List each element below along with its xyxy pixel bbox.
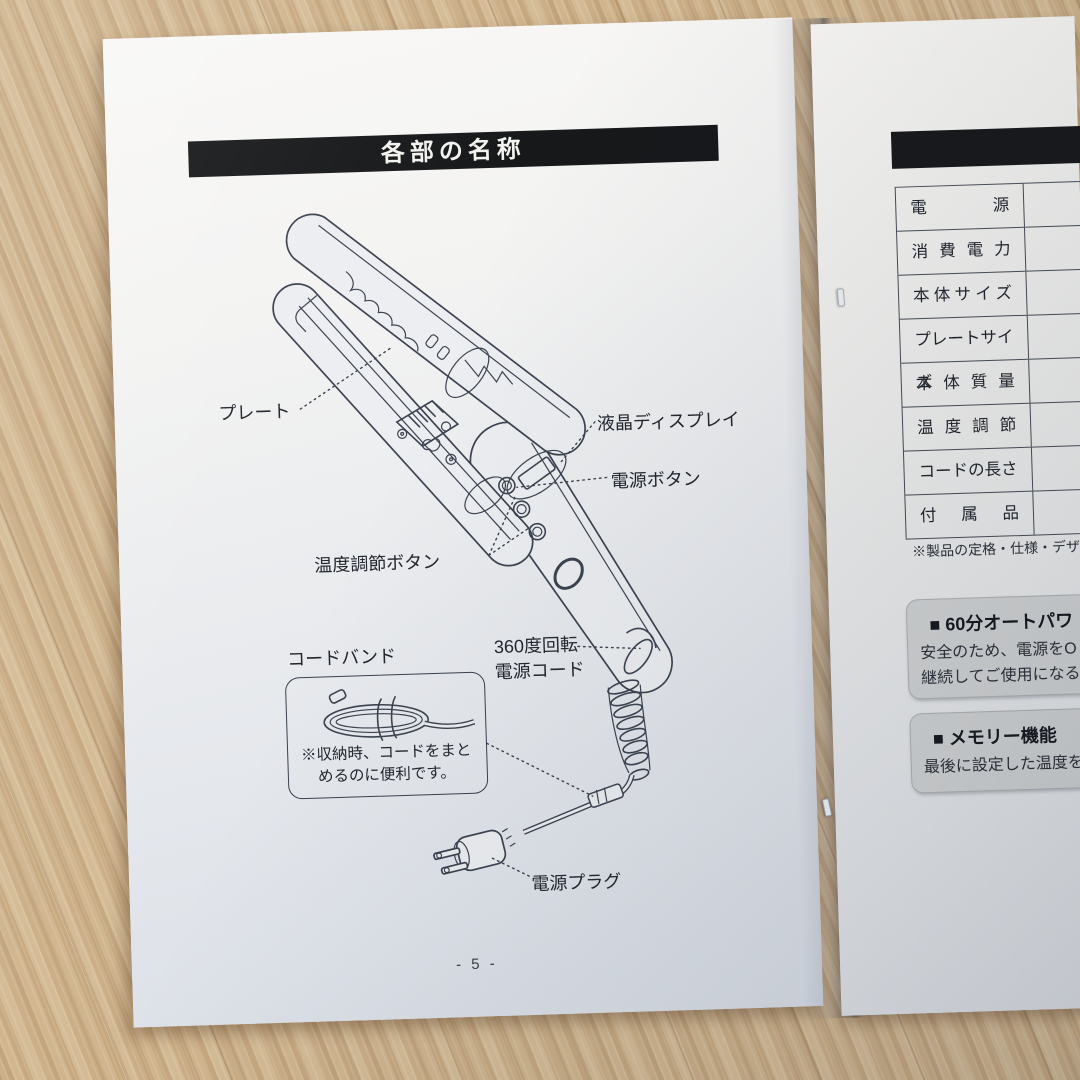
spec-value [1026, 267, 1080, 315]
manual-left-page: 各部の名称 プレート 液晶ディスプレイ 電源ボタン 温度調節ボタン コードバンド… [103, 17, 824, 1027]
spec-table: 電源 消費電力 本体サイズ プレートサイズ 本体質量 温度調節 [895, 178, 1080, 539]
table-row: 電源 [896, 179, 1080, 232]
spec-value [1024, 179, 1080, 227]
memory-function-line1: 最後に設定した温度を [923, 748, 1080, 780]
auto-power-off-box: ■ 60分オートパワ 安全のため、電源をO 継続してご使用になる [906, 592, 1080, 699]
spec-label: 消費電力 [897, 228, 1026, 275]
memory-function-heading: ■ メモリー機能 [933, 718, 1080, 751]
staple [837, 288, 846, 307]
auto-power-off-heading: ■ 60分オートパワ [929, 604, 1080, 637]
cord-band-note: ※収納時、コードをまと めるのに便利です。 [291, 740, 482, 790]
photo-of-manual: 各部の名称 プレート 液晶ディスプレイ 電源ボタン 温度調節ボタン コードバンド… [0, 0, 1080, 1080]
label-plate: プレート [218, 397, 291, 425]
spec-label: 電源 [896, 184, 1025, 231]
label-temp-button: 温度調節ボタン [314, 548, 441, 578]
spec-label: 本体サイズ [898, 272, 1027, 319]
right-page-title-bar [891, 125, 1080, 169]
spec-value [1029, 355, 1080, 403]
label-power-plug: 電源プラグ [531, 867, 622, 896]
table-row: 消費電力 [897, 223, 1080, 276]
spec-value [1031, 399, 1080, 447]
table-row: 付属品 [905, 487, 1080, 539]
spec-label: 付属品 [905, 492, 1034, 539]
staple [822, 798, 833, 817]
spec-label: 温度調節 [903, 404, 1032, 451]
label-cord-band: コードバンド [287, 642, 397, 671]
label-lcd-display: 液晶ディスプレイ [597, 405, 740, 435]
label-swivel-cord-line1: 360度回転 [494, 632, 585, 660]
label-power-button: 電源ボタン [610, 465, 701, 494]
table-row: プレートサイズ [900, 311, 1080, 364]
label-swivel-cord-line2: 電源コード [494, 657, 585, 685]
spec-value [1025, 223, 1080, 271]
manual-right-page: 電源 消費電力 本体サイズ プレートサイズ 本体質量 温度調節 [810, 16, 1080, 1016]
table-row: 温度調節 [903, 399, 1080, 452]
spec-label: 本体質量 [901, 360, 1030, 407]
spec-label: プレートサイズ [900, 316, 1029, 363]
spec-value [1028, 311, 1080, 359]
table-row: 本体質量 [901, 355, 1080, 408]
spec-value [1033, 487, 1080, 535]
table-row: コードの長さ [904, 443, 1080, 496]
spec-value [1032, 443, 1080, 491]
spec-label: コードの長さ [904, 448, 1033, 495]
memory-function-box: ■ メモリー機能 最後に設定した温度を [909, 706, 1080, 793]
label-swivel-cord: 360度回転 電源コード [494, 632, 586, 685]
table-row: 本体サイズ [898, 267, 1080, 320]
